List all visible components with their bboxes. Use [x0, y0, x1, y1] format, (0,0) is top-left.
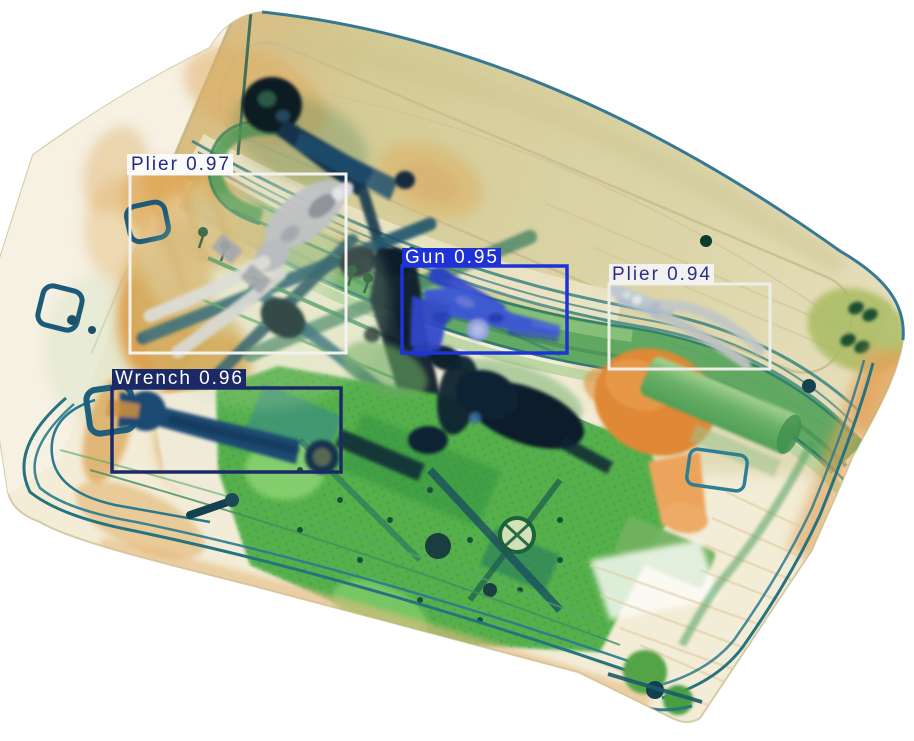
svg-text:Wrench 0.96: Wrench 0.96 [115, 368, 242, 389]
svg-text:Plier 0.97: Plier 0.97 [131, 154, 229, 175]
svg-text:Gun 0.95: Gun 0.95 [405, 247, 497, 268]
svg-text:Plier 0.94: Plier 0.94 [612, 264, 710, 285]
